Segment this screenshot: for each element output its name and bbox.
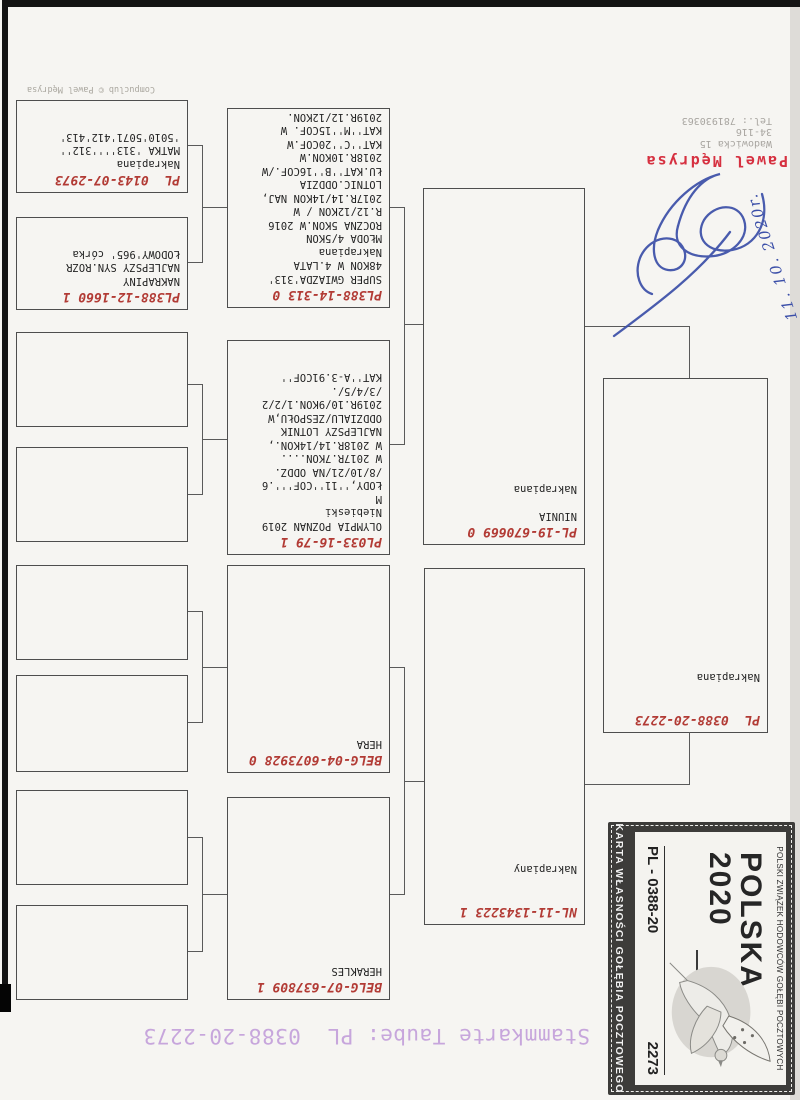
stamp-ring-number: PL - 0388-20 2273 xyxy=(644,846,661,1075)
connector-line xyxy=(405,781,424,782)
connector-line xyxy=(203,439,227,440)
breeder-address: Wadowicka 15 34-116 Tel.: 781930363 xyxy=(682,115,772,150)
stamp-card-label: KARTA WŁASNOŚCI GOŁĘBIA POCZTOWEGO xyxy=(613,822,625,1095)
pedigree-box-ggparent-2 xyxy=(16,790,188,885)
pedigree-box-ggparent-7: PL388-12-1660 1 NAKRAPINYNAJLEPSZY SYN.R… xyxy=(16,217,188,310)
ring-number: PL 0388-20-2273 xyxy=(610,712,760,727)
pedigree-box-grandparent-2: BELG-04-6073928 0 HERA xyxy=(227,565,390,773)
pedigree-box-ggparent-8: PL 0143-07-2973 NakrapianaMATKA '313''''… xyxy=(16,100,188,193)
connector-line xyxy=(203,207,227,208)
connector-line xyxy=(203,894,227,895)
box-details: Nakrapiany xyxy=(431,862,577,903)
connector-line xyxy=(188,611,203,612)
ring-number: BELG-04-6073928 0 xyxy=(234,752,382,767)
box-details: HERA xyxy=(234,737,382,751)
ring-number: PL388-12-1660 1 xyxy=(23,289,180,304)
ring-number: NL-11-1343223 1 xyxy=(431,904,577,919)
software-watermark: Compuclub © Pawel Mędrysa xyxy=(27,84,155,94)
pedigree-box-mother: PL-19-670669 0 NIUNIA Nakrapiana xyxy=(423,188,585,545)
pedigree-box-ggparent-1 xyxy=(16,905,188,1000)
stamp-ring-prefix: PL - 0388-20 xyxy=(644,846,661,933)
connector-line xyxy=(188,837,203,838)
box-details: NIUNIA Nakrapiana xyxy=(430,482,577,523)
stamp-inner: POLSKI ZWIĄZEK HODOWCÓW GOŁĘBI POCZTOWYC… xyxy=(635,832,786,1085)
connector-line xyxy=(188,494,203,495)
connector-line xyxy=(390,667,405,668)
stamp-face: POLSKI ZWIĄZEK HODOWCÓW GOŁĘBI POCZTOWYC… xyxy=(608,822,795,1095)
connector-line xyxy=(188,384,203,385)
box-details: OLYMPIA POZNAN 2019NiebieskiMŁODY,''11''… xyxy=(234,370,382,532)
connector-line xyxy=(188,262,203,263)
ring-number: PL 0143-07-2973 xyxy=(23,172,180,187)
connector-line xyxy=(390,207,405,208)
connector-line xyxy=(585,784,690,785)
pedigree-box-ggparent-3 xyxy=(16,675,188,772)
connector-line xyxy=(390,444,405,445)
ring-number: PL388-14-313 0 xyxy=(234,287,382,302)
stamp-ring-serial: 2273 xyxy=(644,1042,661,1075)
pedigree-box-ggparent-5 xyxy=(16,447,188,542)
box-details: HERAKLES xyxy=(234,964,382,978)
ring-number: PL-19-670669 0 xyxy=(430,524,577,539)
connector-line xyxy=(405,324,423,325)
connector-line xyxy=(203,667,227,668)
pedigree-box-grandparent-4: PL388-14-313 0 SUPER GWIAZDA'313'48KON W… xyxy=(227,108,390,308)
connector-line xyxy=(689,732,690,785)
breeder-street: Wadowicka 15 xyxy=(682,138,772,150)
connector-line xyxy=(404,207,405,445)
breeder-postal-code: 34-116 xyxy=(682,126,772,138)
box-details: SUPER GWIAZDA'313'48KON W 4.LATANakrapia… xyxy=(234,110,382,286)
pedigree-box-father: NL-11-1343223 1 Nakrapiany xyxy=(424,568,585,925)
pigeon-icon xyxy=(658,951,776,1079)
pedigree-box-subject: PL 0388-20-2273 Nakrapiana xyxy=(603,378,768,733)
breeder-phone: Tel.: 781930363 xyxy=(682,115,772,127)
scanned-pedigree-card: POLSKI ZWIĄZEK HODOWCÓW GOŁĘBI POCZTOWYC… xyxy=(0,0,800,1100)
box-details: NakrapianaMATKA '313''''312'''5010'5071'… xyxy=(23,130,180,171)
scan-edge-top xyxy=(6,0,800,7)
pedigree-box-grandparent-3: PL033-16-79 1 OLYMPIA POZNAN 2019Niebies… xyxy=(227,340,390,555)
scan-edge-mark xyxy=(0,984,11,1012)
box-details: Nakrapiana xyxy=(610,670,760,711)
pedigree-box-ggparent-6 xyxy=(16,332,188,427)
ring-number: PL033-16-79 1 xyxy=(234,534,382,549)
ring-number-rule xyxy=(664,846,665,1075)
connector-line xyxy=(188,722,203,723)
pedigree-box-grandparent-1: BELG-07-637809 1 HERAKLES xyxy=(227,797,390,1000)
box-details: NAKRAPINYNAJLEPSZY SYN.ROZRŁODOWY'965' c… xyxy=(23,247,180,288)
pedigree-box-ggparent-4 xyxy=(16,565,188,660)
scan-edge-left xyxy=(2,0,8,1012)
federation-label: POLSKI ZWIĄZEK HODOWCÓW GOŁĘBI POCZTOWYC… xyxy=(775,832,784,1085)
page-title: Stammkarte Taube: PL 0388-20-2273 xyxy=(143,1024,590,1048)
connector-line xyxy=(188,951,203,952)
connector-line xyxy=(202,145,203,263)
connector-line xyxy=(390,894,405,895)
ownership-stamp: POLSKI ZWIĄZEK HODOWCÓW GOŁĘBI POCZTOWYC… xyxy=(608,822,795,1095)
connector-line xyxy=(188,145,203,146)
ring-number: BELG-07-637809 1 xyxy=(234,979,382,994)
card-content-upside-down: POLSKI ZWIĄZEK HODOWCÓW GOŁĘBI POCZTOWYC… xyxy=(0,0,800,1100)
